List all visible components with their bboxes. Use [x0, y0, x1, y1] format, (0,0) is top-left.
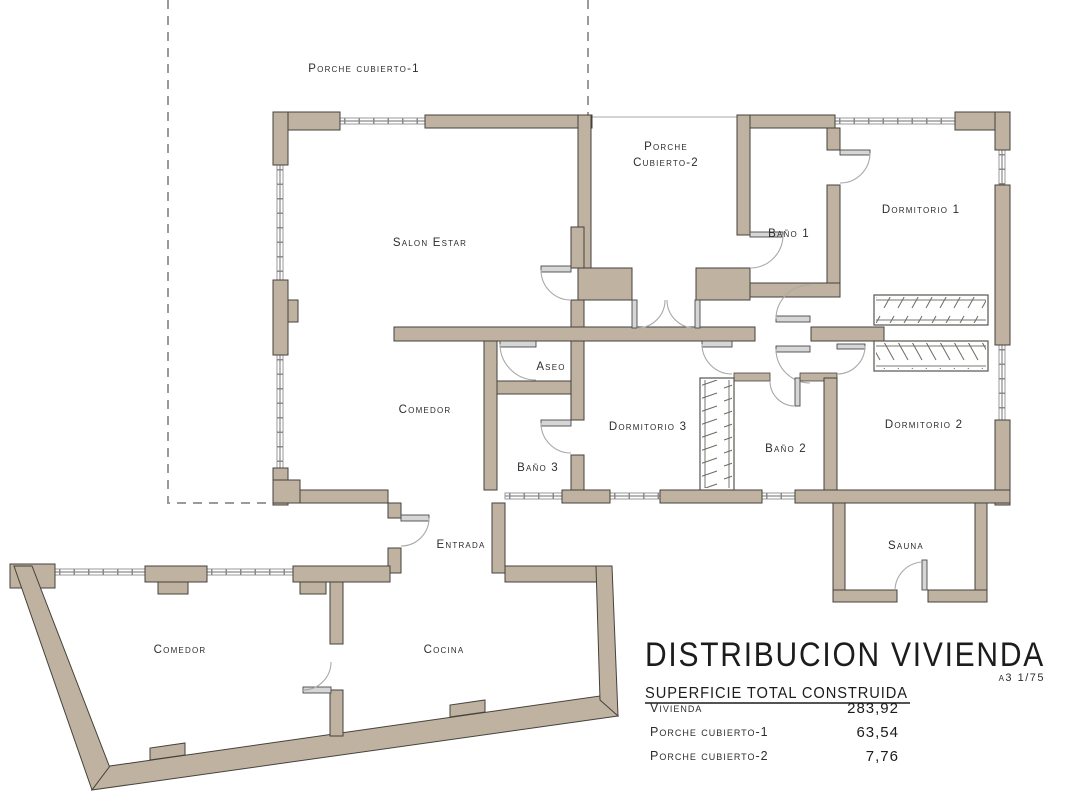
window [610, 493, 660, 499]
room-label-aseo: Aseo [536, 361, 565, 373]
surface-row-value: 283,92 [847, 700, 899, 717]
surface-row-label: Porche cubierto-2 [650, 749, 769, 763]
room-label-porche-cubierto-1: Porche cubierto-1 [308, 63, 419, 75]
closet-hatch [874, 341, 988, 371]
closets [700, 295, 988, 490]
door [632, 300, 665, 328]
room-label-dormitorio-1: Dormitorio 1 [882, 204, 960, 216]
window [762, 493, 795, 499]
room-label-sauna: Sauna [888, 540, 924, 552]
room-label-porche-cubierto-2-line1: Porche [644, 141, 688, 153]
door [401, 515, 429, 546]
surface-row-label: Vivienda [650, 701, 702, 715]
door [837, 344, 865, 374]
window [207, 569, 293, 575]
door [500, 341, 536, 380]
window [277, 355, 283, 468]
window [55, 569, 145, 575]
door [303, 662, 331, 693]
floorplan-sheet: Porche cubierto-1 Salon Estar Porche Cub… [0, 0, 1066, 800]
title-block: DISTRIBUCION VIVIENDA a3 1/75 SUPERFICIE… [645, 636, 1045, 765]
surface-row-value: 7,76 [866, 748, 899, 765]
room-label-comedor-anexo: Comedor [154, 644, 207, 656]
door [895, 560, 927, 590]
porch1-dashed-outline [168, 0, 588, 503]
door [702, 341, 732, 374]
window [505, 493, 562, 499]
room-label-salon-estar: Salon Estar [393, 237, 467, 249]
surface-row-label: Porche cubierto-1 [650, 725, 769, 739]
room-label-bano-2: Baño 2 [765, 443, 807, 455]
sheet-title: DISTRIBUCION VIVIENDA [645, 636, 1045, 674]
door [541, 420, 571, 453]
door [541, 266, 571, 300]
window [999, 345, 1005, 420]
window [999, 150, 1005, 185]
room-label-porche-cubierto-2-line2: Cubierto-2 [633, 157, 699, 169]
surface-table-row: Porche cubierto-2 7,76 [650, 748, 899, 765]
closet-hatch [874, 295, 988, 325]
surface-row-value: 63,54 [856, 724, 899, 741]
room-label-cocina: Cocina [424, 644, 465, 656]
room-label-bano-3: Baño 3 [517, 462, 559, 474]
closet-hatch [700, 378, 734, 490]
room-label-bano-1: Baño 1 [768, 228, 810, 240]
room-label-comedor: Comedor [399, 404, 452, 416]
room-label-dormitorio-2: Dormitorio 2 [885, 419, 963, 431]
window [340, 118, 425, 124]
door [770, 378, 800, 406]
sheet-scale: a3 1/75 [999, 672, 1045, 684]
window [835, 118, 955, 124]
room-label-entrada: Entrada [437, 539, 486, 551]
floorplan-drawing: Porche cubierto-1 Salon Estar Porche Cub… [0, 0, 1066, 800]
door [840, 150, 870, 183]
window [277, 165, 283, 280]
room-label-dormitorio-3: Dormitorio 3 [609, 421, 687, 433]
door [667, 300, 700, 328]
surface-table-row: Porche cubierto-1 63,54 [650, 724, 899, 741]
